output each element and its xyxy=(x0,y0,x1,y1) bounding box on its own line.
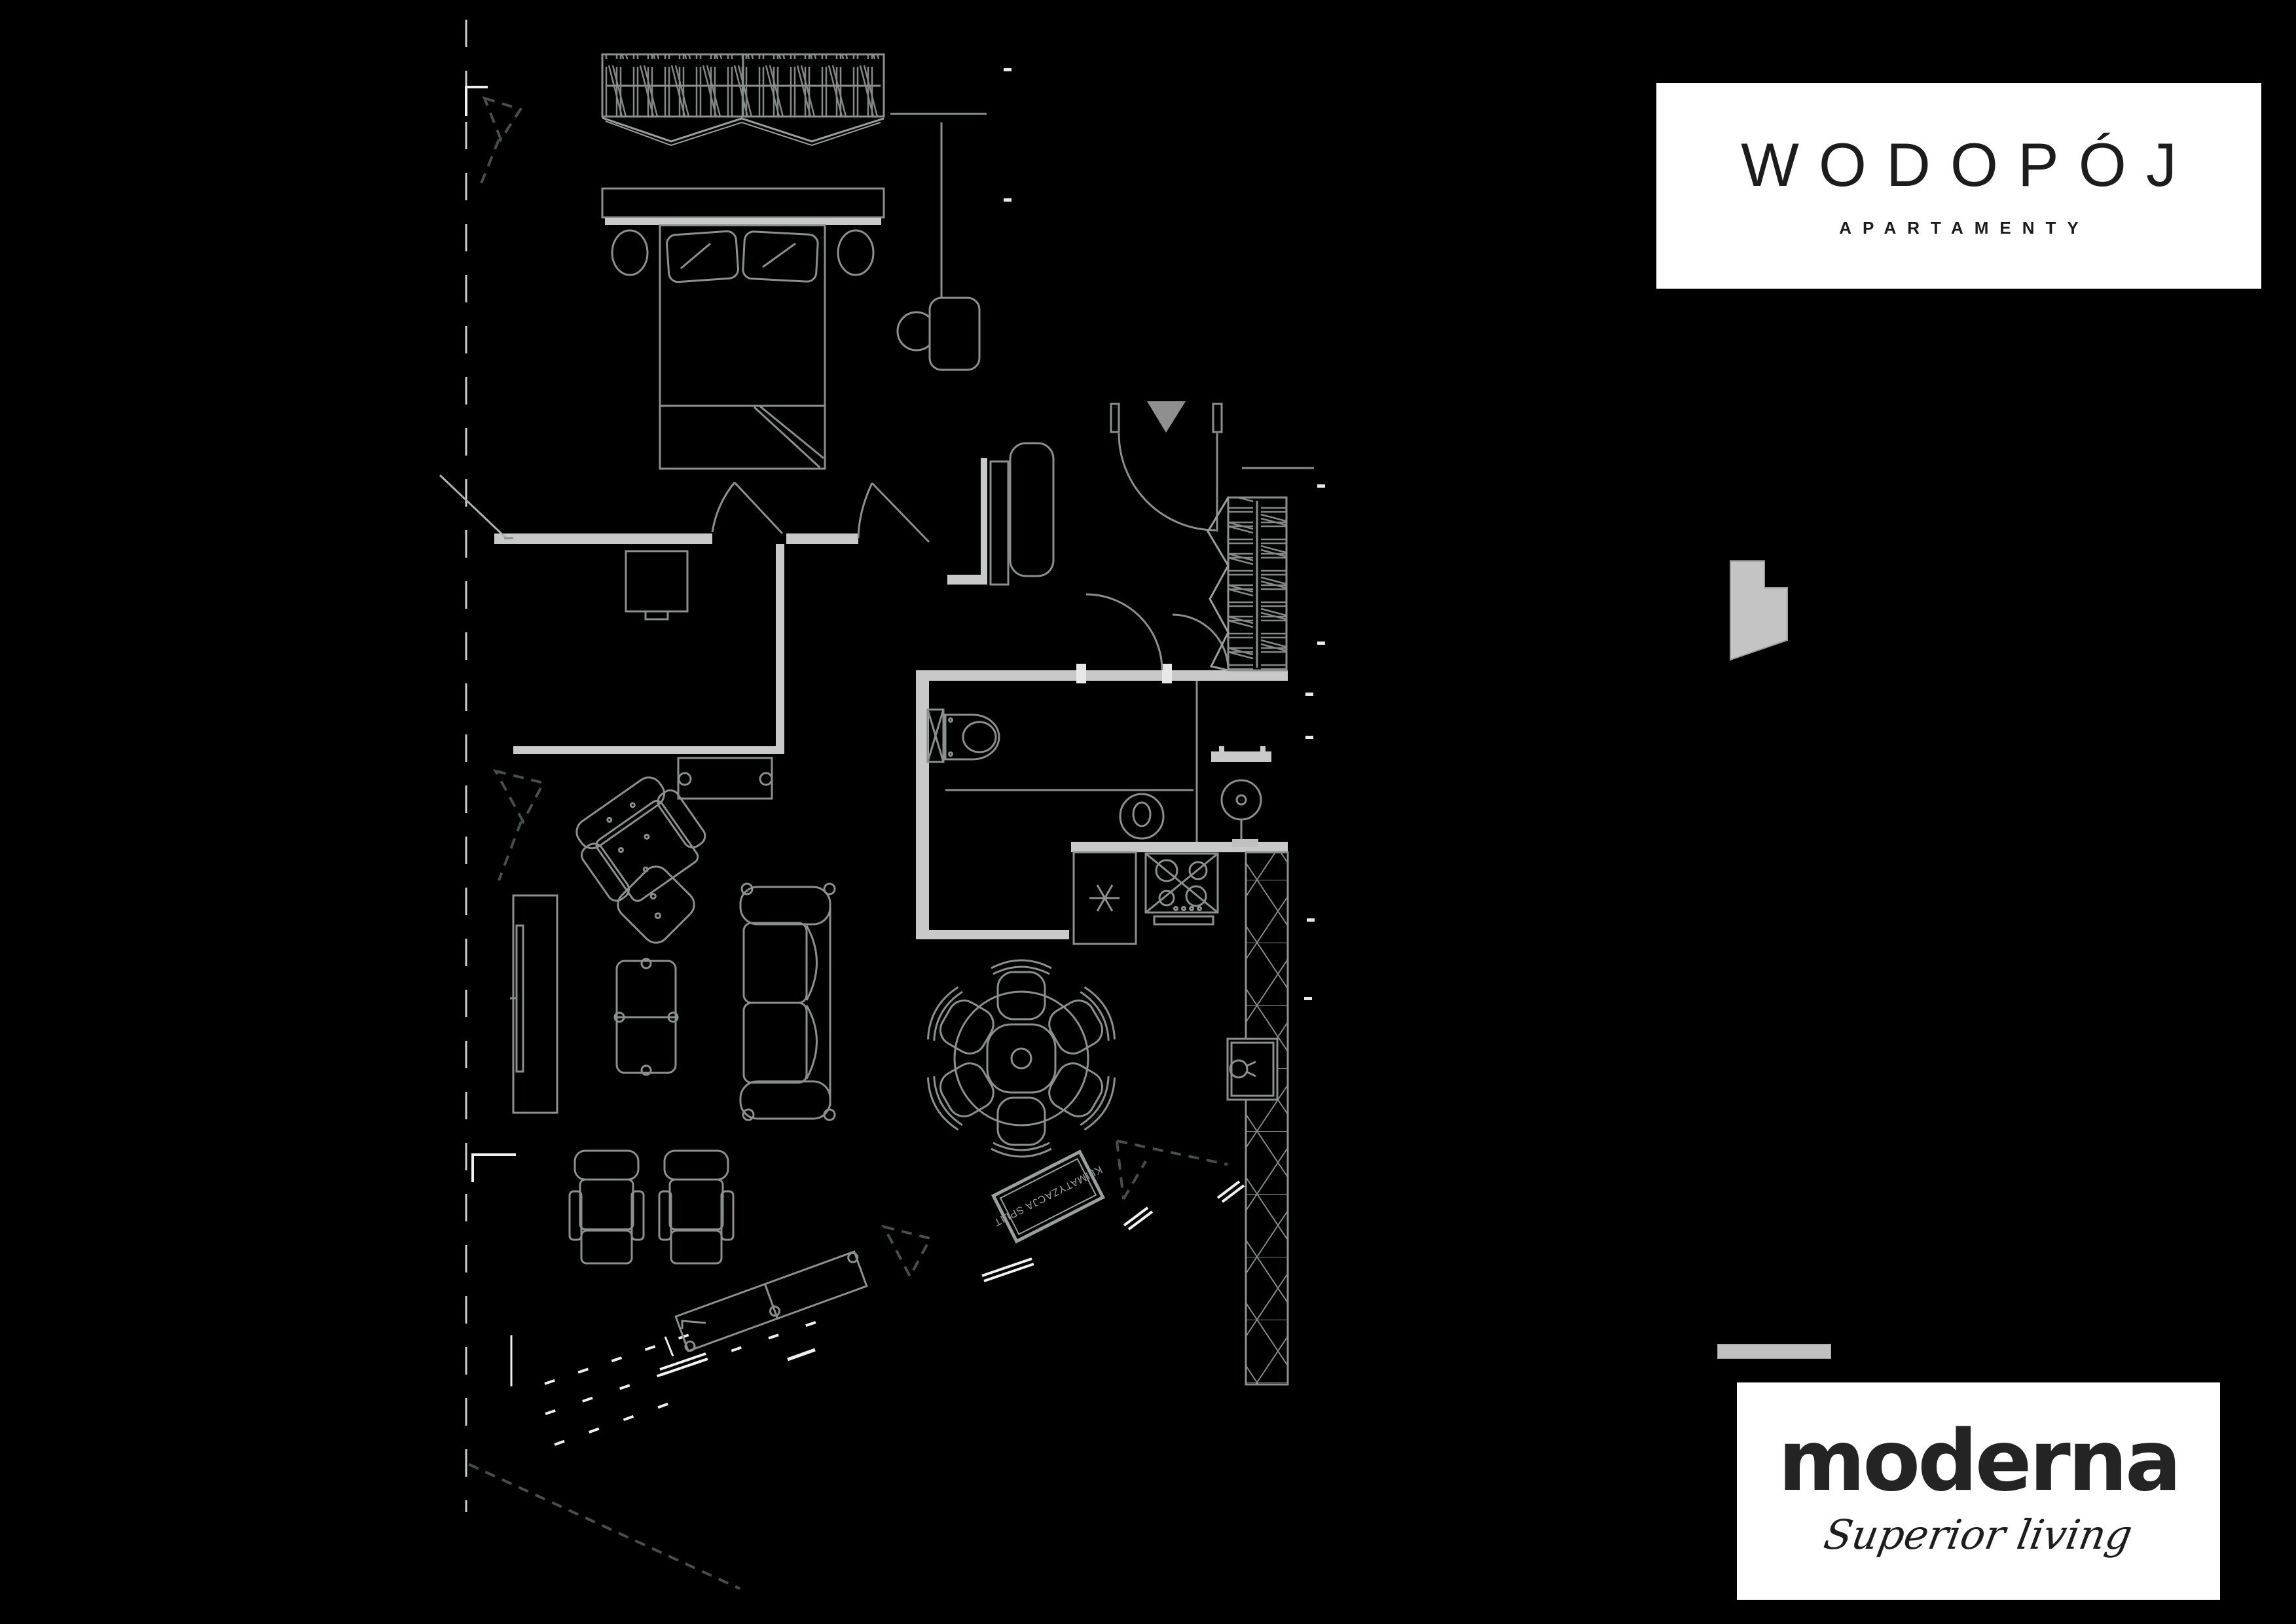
lounge-chairs-icon xyxy=(570,1151,733,1263)
wardrobe-icon xyxy=(602,54,884,145)
developer-logo-card: WODOPÓJ APARTAMENTY xyxy=(1656,83,2261,289)
armchair-corner-icon xyxy=(898,298,979,370)
dining-table-icon xyxy=(921,960,1121,1157)
radiator-console-icon xyxy=(678,758,772,799)
sofa-icon xyxy=(740,884,835,1120)
terrace-edge-marks xyxy=(511,1182,1244,1445)
doors xyxy=(440,475,1228,670)
armchair-icon xyxy=(564,767,715,914)
bathroom xyxy=(928,710,1194,839)
site-boundary-dashes xyxy=(466,20,1228,1589)
entrance-door-icon xyxy=(1111,401,1222,532)
kitchen xyxy=(1074,780,1288,1384)
toilet-icon xyxy=(945,715,999,759)
brand-logo-title: moderna xyxy=(1778,1424,2179,1499)
washbasin-icon xyxy=(1120,794,1163,839)
nightstand-icon xyxy=(838,230,873,275)
ac-label-text: KLIMATYZACJA SPLIT xyxy=(992,1163,1104,1228)
walls xyxy=(494,458,1288,939)
kitchen-tall-units xyxy=(1246,852,1288,1384)
tv-console-icon xyxy=(510,895,557,1113)
brand-logo-subtitle: Superior living xyxy=(1821,1511,2136,1559)
kitchen-wall-tap-icon xyxy=(1222,780,1261,847)
living-room xyxy=(510,758,868,1352)
hall-console-icon xyxy=(991,443,1053,585)
building-silhouette-icon xyxy=(1730,561,1787,660)
brand-logo-card: moderna Superior living xyxy=(1737,1382,2220,1600)
hob-icon xyxy=(1146,854,1218,924)
divider-bar xyxy=(1717,1344,1831,1359)
cistern-icon xyxy=(928,710,943,762)
brochure-page: { "brand_top": { "name": "WODOPÓJ", "sub… xyxy=(0,0,2296,1624)
kitchen-sink-icon xyxy=(1228,1039,1277,1100)
ac-label: KLIMATYZACJA SPLIT xyxy=(983,1146,1113,1246)
developer-logo-title: WODOPÓJ xyxy=(1721,134,2196,196)
closet-icon xyxy=(1208,497,1286,670)
bed-icon xyxy=(602,189,884,469)
pouf-icon xyxy=(613,861,700,948)
nightstand-icon xyxy=(612,230,647,275)
bedroom-cabinet-icon xyxy=(626,551,687,619)
coffee-table-icon xyxy=(615,959,678,1075)
developer-logo-subtitle: APARTAMENTY xyxy=(1828,218,2089,238)
fridge-snowflake-icon xyxy=(1074,852,1136,944)
